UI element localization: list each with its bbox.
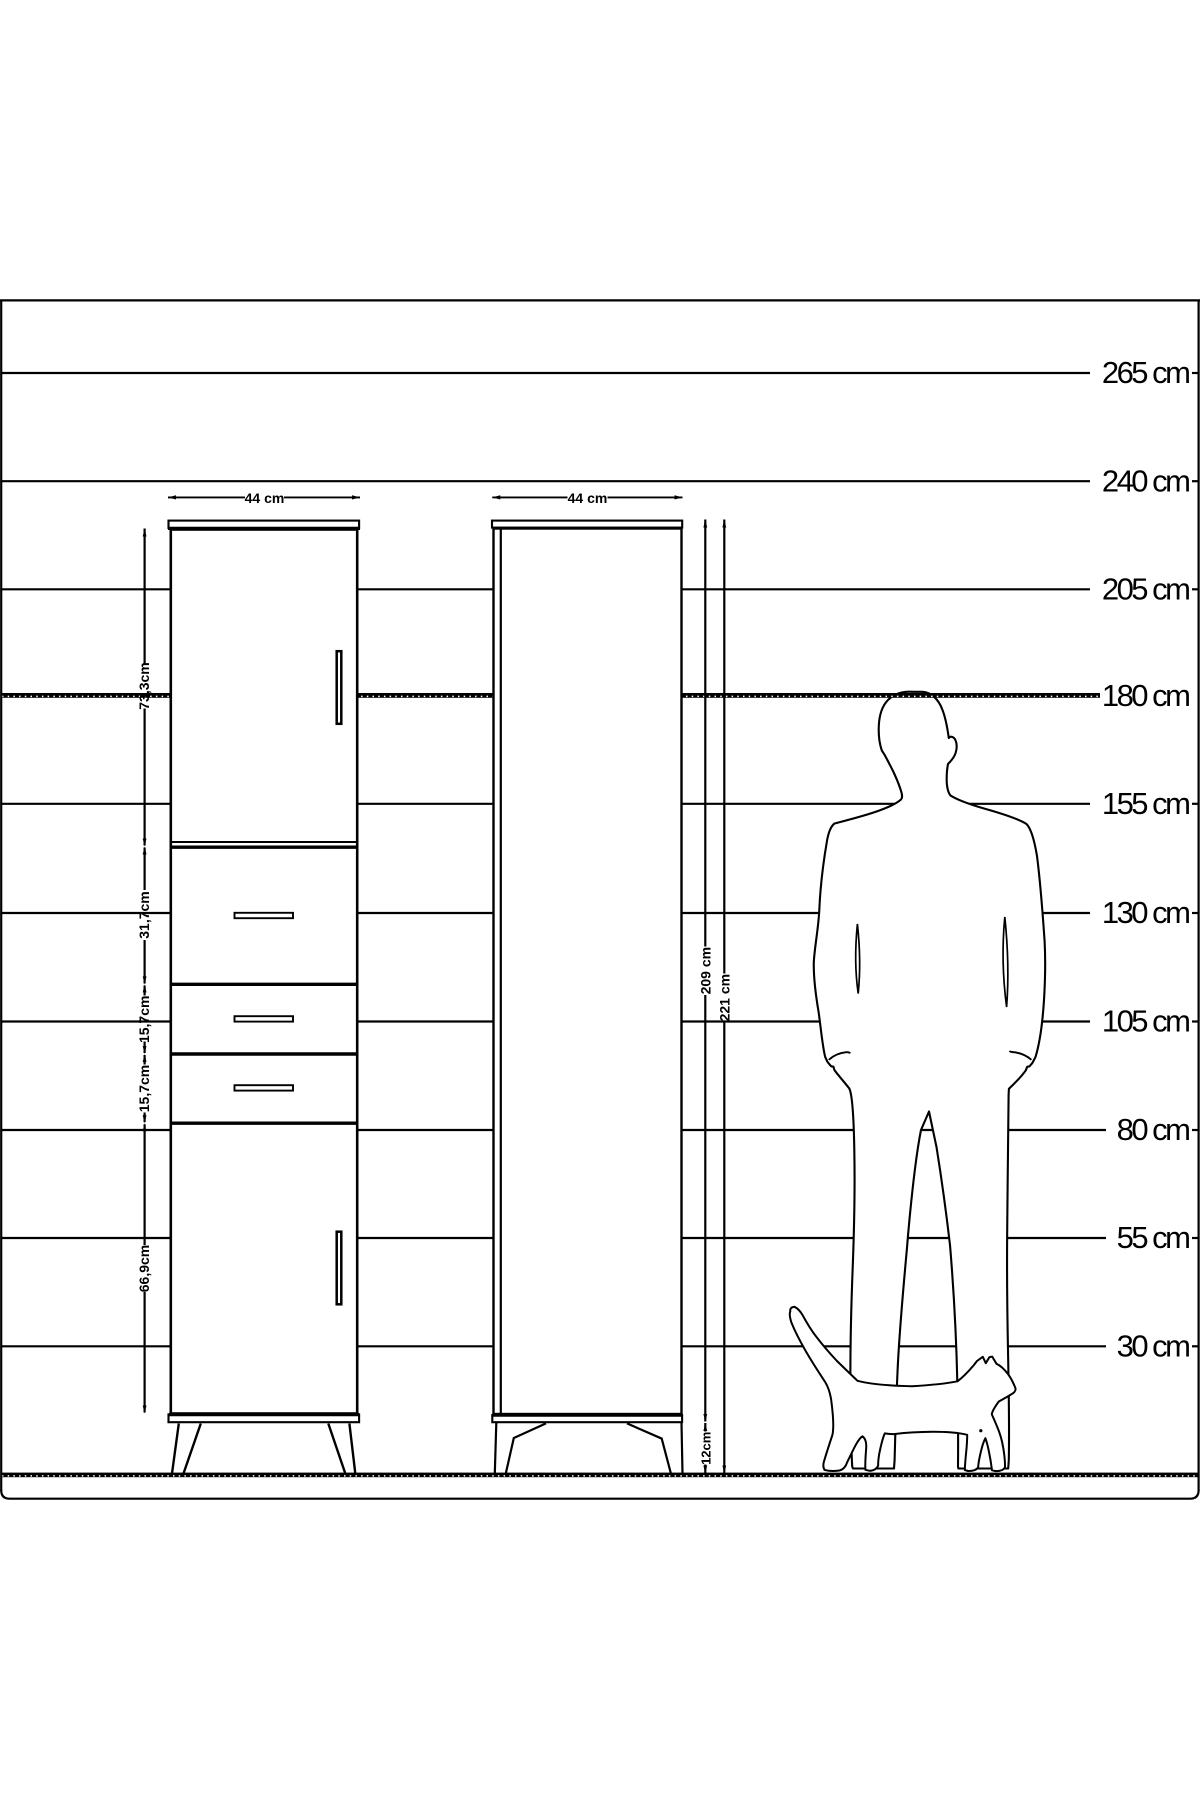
svg-text:80 cm: 80 cm [1117, 1112, 1190, 1147]
svg-text:240 cm: 240 cm [1102, 463, 1189, 498]
svg-text:180 cm: 180 cm [1102, 678, 1189, 713]
svg-text:155 cm: 155 cm [1102, 786, 1189, 821]
svg-text:221 cm: 221 cm [717, 974, 733, 1021]
svg-text:31,7cm: 31,7cm [136, 891, 152, 938]
svg-text:209 cm: 209 cm [698, 947, 714, 994]
svg-text:44 cm: 44 cm [568, 490, 608, 506]
svg-text:265 cm: 265 cm [1102, 355, 1189, 390]
svg-text:205 cm: 205 cm [1102, 572, 1189, 607]
svg-text:30 cm: 30 cm [1117, 1329, 1190, 1364]
svg-text:130 cm: 130 cm [1102, 895, 1189, 930]
svg-text:15,7cm: 15,7cm [136, 996, 152, 1043]
svg-text:44 cm: 44 cm [245, 490, 285, 506]
svg-text:73,3cm: 73,3cm [136, 662, 152, 709]
svg-text:66,9cm: 66,9cm [136, 1245, 152, 1292]
svg-text:12cm: 12cm [699, 1432, 714, 1465]
svg-text:15,7cm: 15,7cm [136, 1065, 152, 1112]
svg-text:55 cm: 55 cm [1117, 1220, 1190, 1255]
svg-text:105 cm: 105 cm [1102, 1004, 1189, 1039]
